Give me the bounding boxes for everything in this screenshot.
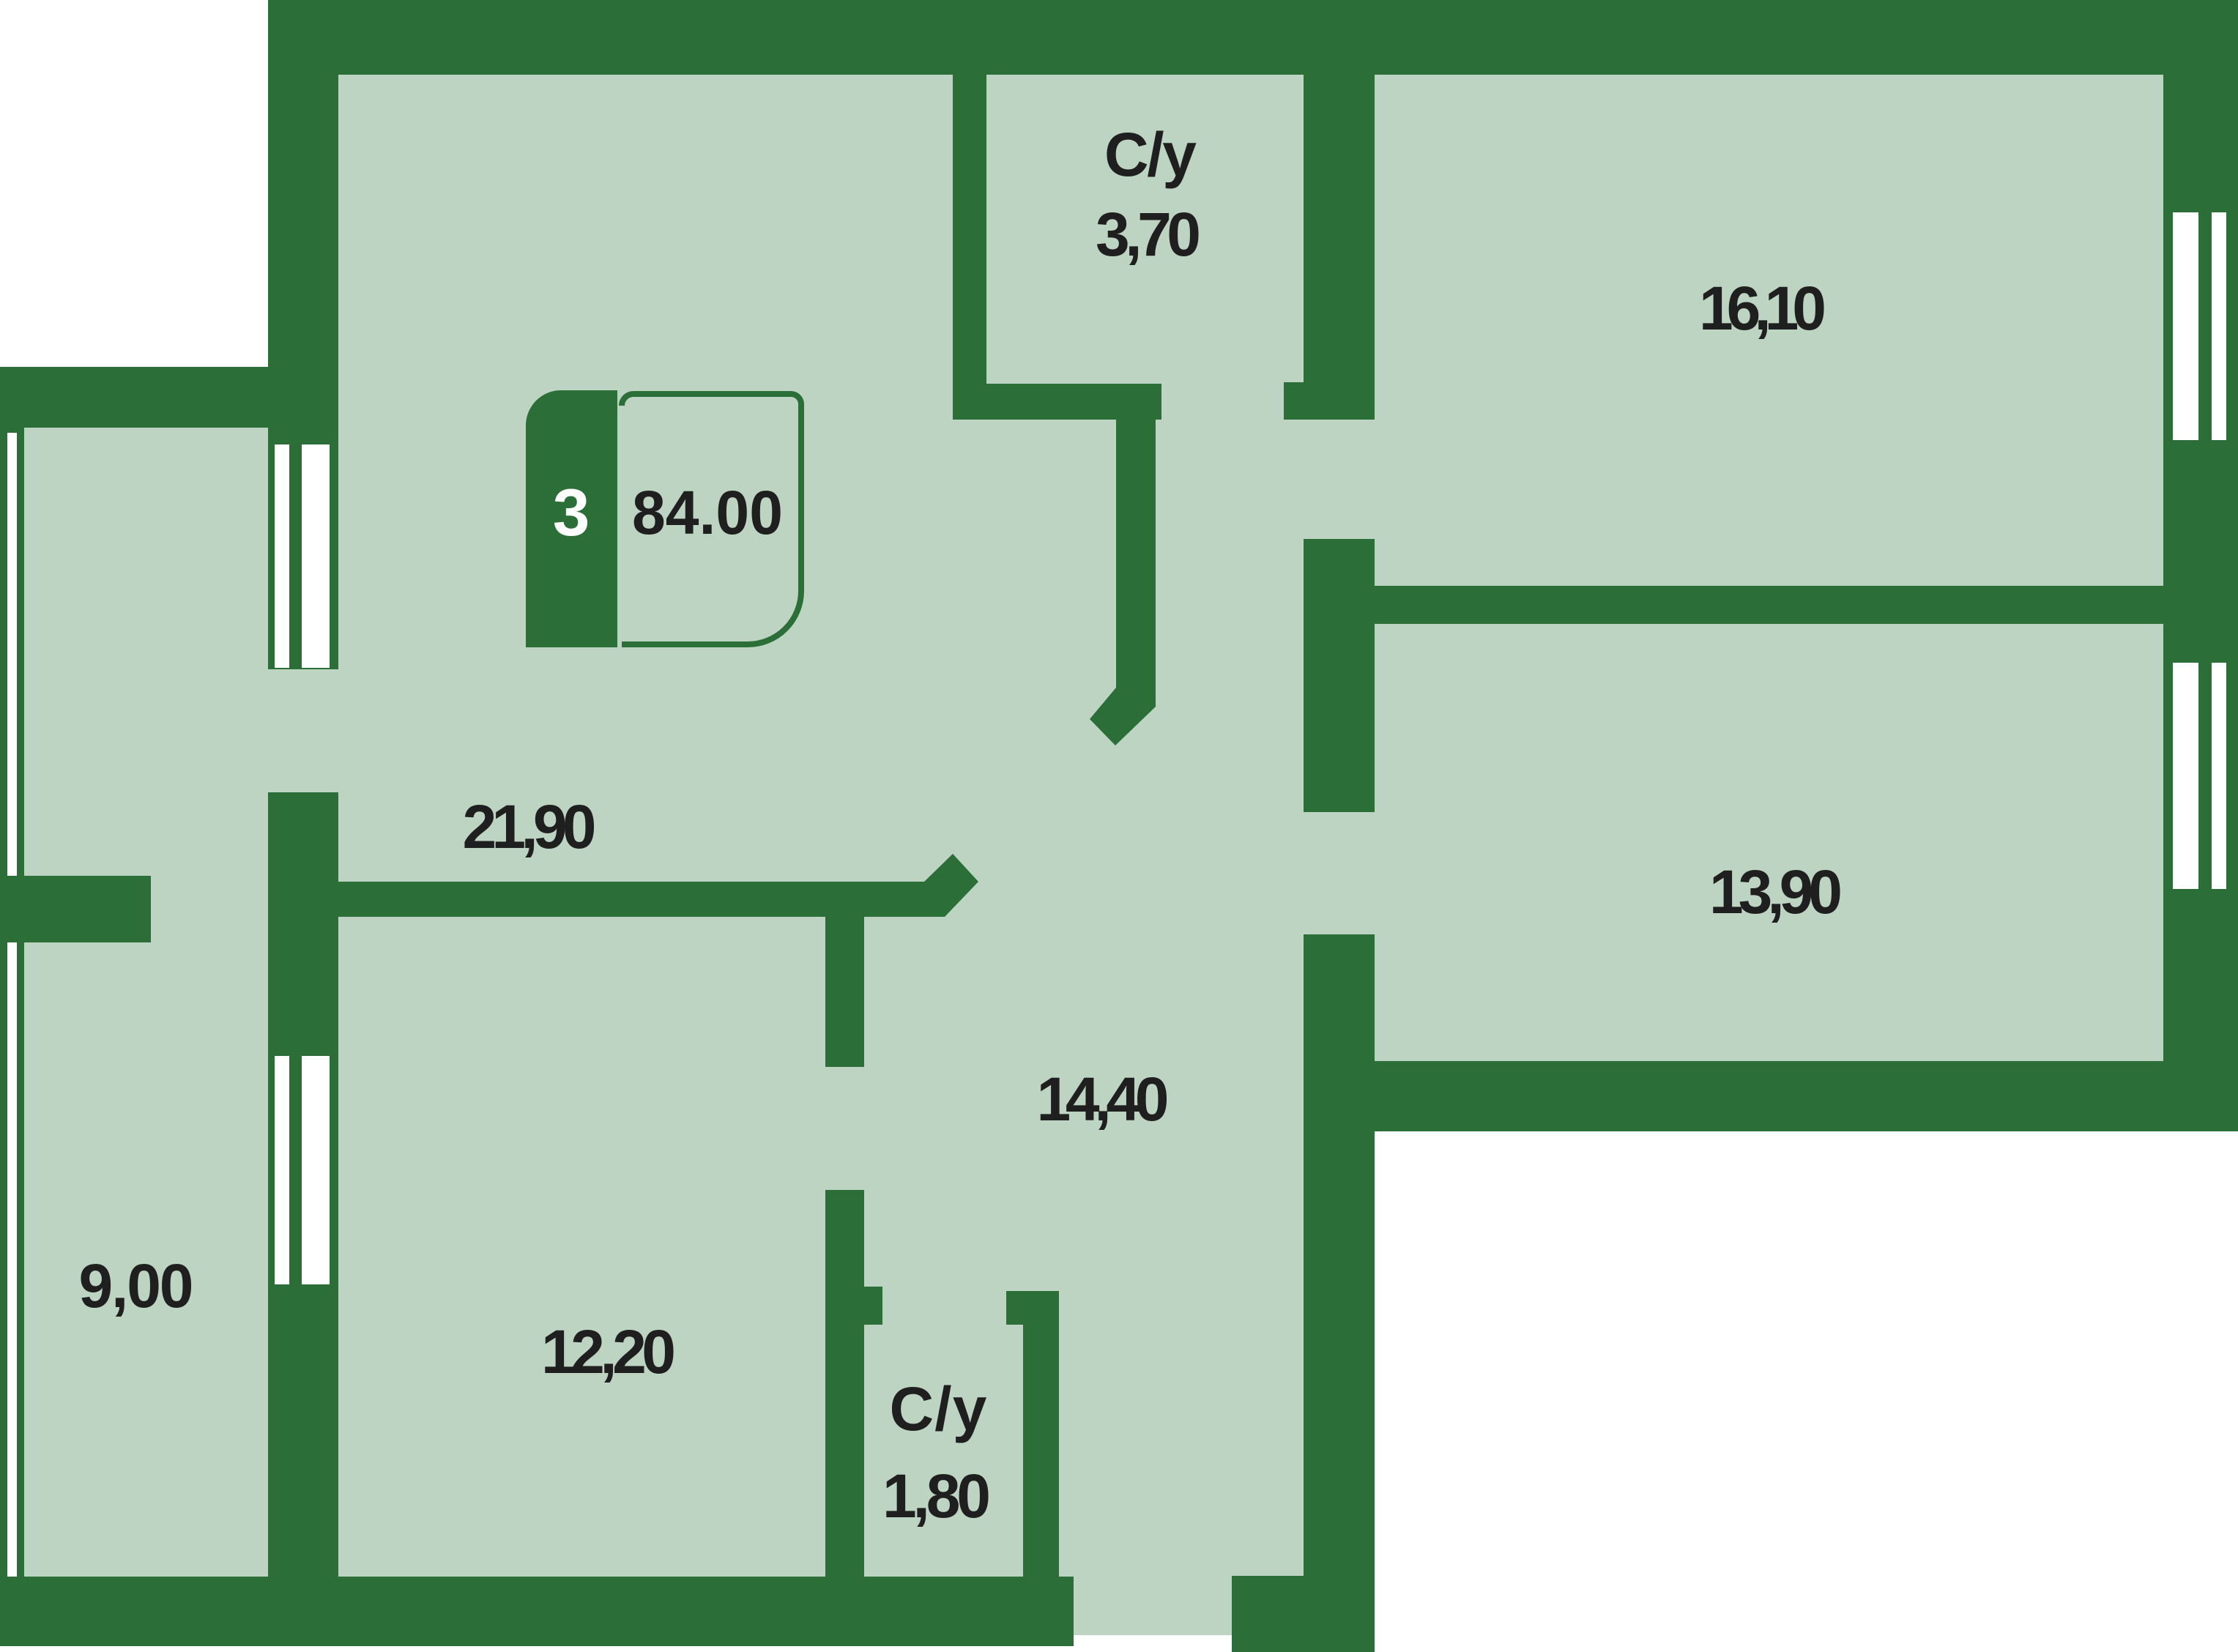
svg-text:3,70: 3,70 bbox=[1096, 200, 1201, 269]
svg-text:12,20: 12,20 bbox=[541, 1317, 676, 1386]
svg-text:9,00: 9,00 bbox=[79, 1251, 194, 1320]
svg-text:3: 3 bbox=[553, 476, 590, 550]
svg-text:21,90: 21,90 bbox=[463, 792, 597, 861]
svg-text:C/y: C/y bbox=[890, 1374, 987, 1443]
svg-text:16,10: 16,10 bbox=[1699, 274, 1826, 343]
svg-text:1,80: 1,80 bbox=[882, 1462, 991, 1530]
svg-text:84.00: 84.00 bbox=[632, 478, 783, 547]
svg-text:14,40: 14,40 bbox=[1037, 1065, 1170, 1134]
svg-text:13,90: 13,90 bbox=[1709, 857, 1843, 926]
svg-text:C/y: C/y bbox=[1104, 120, 1197, 189]
